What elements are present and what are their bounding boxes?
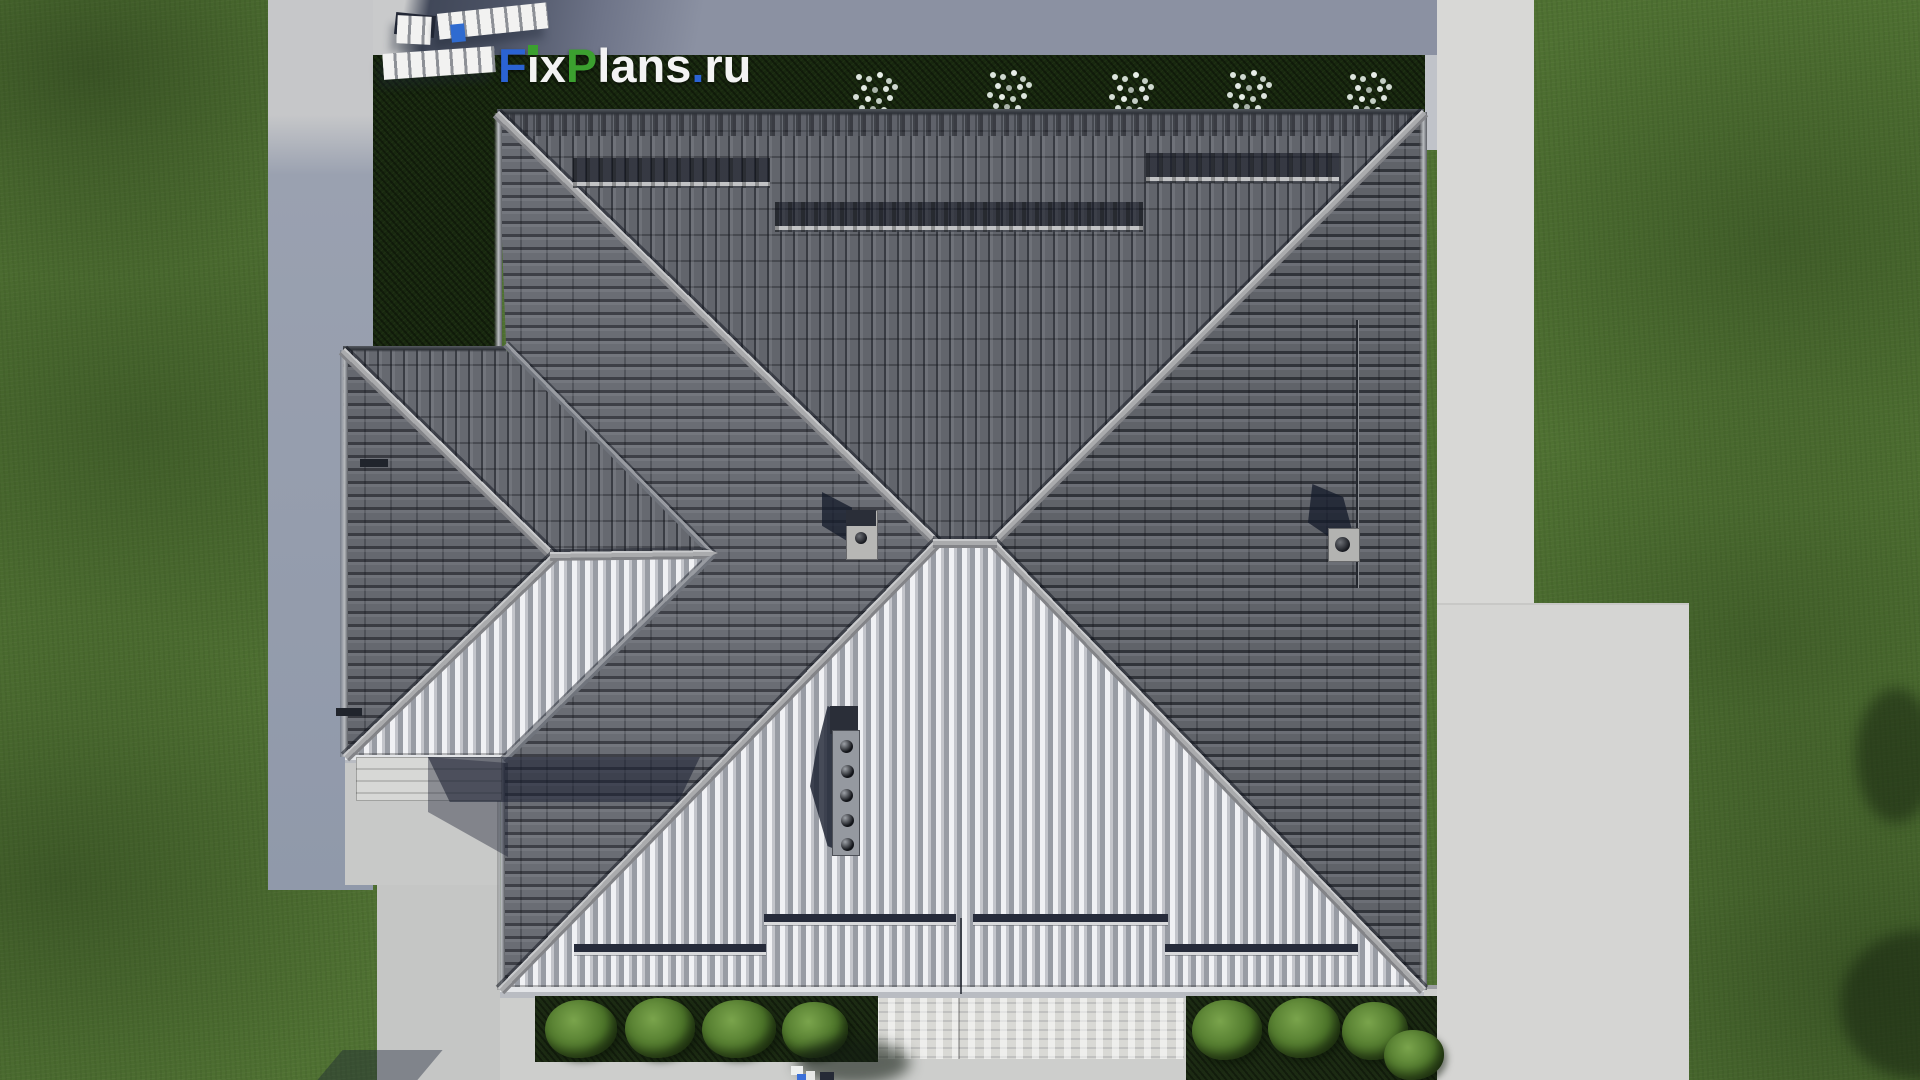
garden-object	[806, 1071, 815, 1080]
aerial-render-scene: FixPlans.ru	[0, 0, 1920, 1080]
watermark-letter: lans	[597, 39, 691, 92]
snow-guard-south	[764, 914, 956, 926]
vent-outlet	[840, 789, 853, 802]
watermark-letter: ru	[704, 39, 751, 92]
snow-guard-south	[574, 944, 766, 956]
eave-east	[1419, 112, 1427, 990]
eave-west-upper	[494, 113, 502, 347]
eave-north	[497, 109, 1424, 116]
garden-object-dark	[820, 1072, 834, 1080]
eave-wing-north	[343, 346, 506, 352]
snow-guard-north-center	[775, 202, 1143, 232]
snow-guard-north-left	[573, 158, 770, 188]
garden-object-blue	[797, 1074, 806, 1080]
snow-guard-wing	[360, 459, 388, 467]
watermark-i-dot	[528, 45, 538, 55]
ridge-cap-main	[933, 536, 997, 548]
chimney-vent	[1335, 537, 1350, 552]
snow-guard-north-right	[1146, 153, 1339, 183]
furniture-slat-blue	[450, 23, 466, 42]
snow-guard-wing	[336, 708, 362, 716]
watermark-letter: F	[498, 39, 527, 92]
snow-guard-south	[1165, 944, 1358, 956]
furniture-slats	[396, 15, 431, 45]
chimney-cap	[846, 510, 876, 526]
hip-roof	[0, 0, 1920, 1080]
watermark-letter: .	[691, 39, 704, 92]
vent-outlet	[841, 765, 854, 778]
watermark-letter: P	[566, 39, 597, 92]
snow-guard-south	[973, 914, 1168, 926]
vent-outlet	[840, 740, 853, 753]
watermark-logo: FixPlans.ru	[498, 42, 751, 89]
chimney-flue	[855, 532, 867, 544]
vent-outlet	[841, 814, 854, 827]
eave-wing-west	[340, 350, 348, 757]
vent-outlet	[841, 838, 854, 851]
roof-pipe-line	[960, 918, 962, 994]
ridge-cap-wing	[550, 547, 718, 561]
